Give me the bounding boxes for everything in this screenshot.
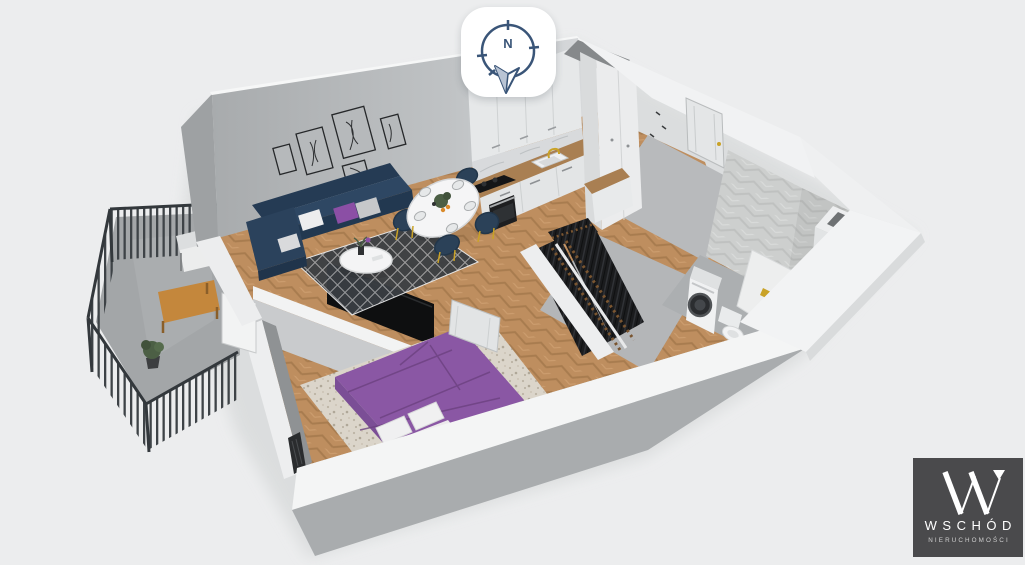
vase-bloom [366,238,371,243]
cooktop-burner [493,178,498,183]
balcony-plant-leaf [141,340,151,350]
brand-subtitle: NIERUCHOMOŚCI [926,537,1010,544]
compass-north-label: N [503,36,512,51]
candle [432,202,436,206]
brand-name: WSCHÓD [919,518,1017,533]
coffee-table [340,247,392,273]
centerpiece-plant-leaf [443,192,451,200]
compass-north-icon: N [461,7,556,97]
monogram-stroke [971,472,987,514]
monogram-triangle [993,470,1005,480]
cooktop-burner [482,182,487,187]
balcony-plant-leaf2 [154,342,164,352]
floorplan-page: N WSCHÓD NIERUCHOMOŚCI [0,0,1025,565]
door-handle [717,142,721,146]
fruit [446,205,450,209]
tall-cabinet-knob [627,145,630,148]
fruit [441,208,445,212]
washing-machine-drum [695,300,706,311]
monogram-stroke [987,478,1000,514]
wschod-monogram-icon [913,462,1023,518]
monogram-stroke [945,472,961,514]
table-vase [358,246,364,255]
tall-cabinet-knob [611,139,614,142]
brand-logo: WSCHÓD NIERUCHOMOŚCI [913,458,1023,557]
compass-ring [482,25,534,77]
compass-widget[interactable]: N [461,7,556,97]
